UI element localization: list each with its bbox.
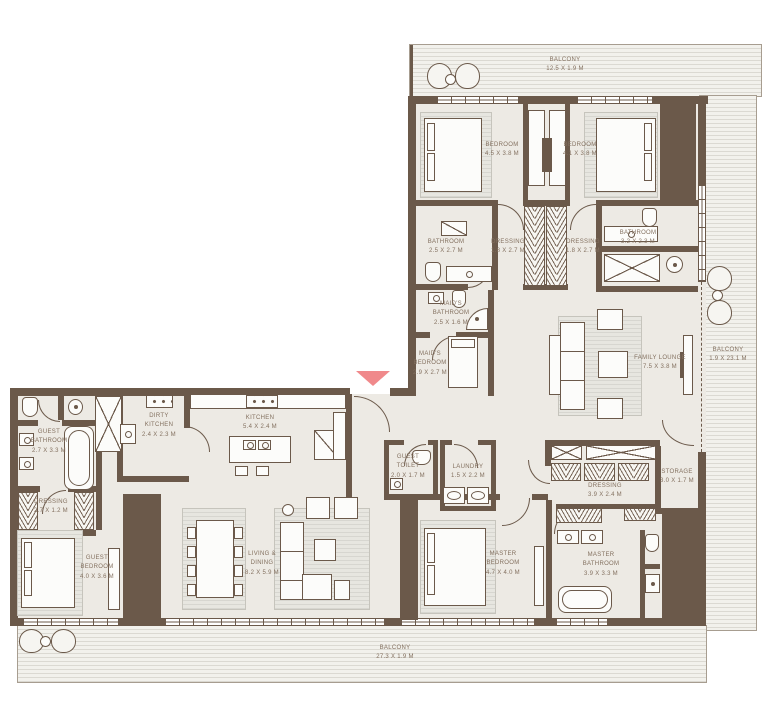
sink: [258, 440, 271, 450]
room-label-balcony-right: BALCONY1.9 x 23.1 M: [702, 346, 754, 365]
chair: [187, 584, 196, 596]
armchair: [597, 309, 623, 330]
room-dims: 2.7 x 3.3 M: [32, 447, 66, 456]
window: [166, 618, 384, 626]
room-dims: 2.5 x 2.7 M: [429, 247, 463, 256]
room-label-kitchen: KITCHEN5.4 x 2.4 M: [230, 414, 290, 433]
chair: [187, 527, 196, 539]
sink: [581, 530, 603, 544]
wardrobe-rack: [624, 508, 656, 521]
room-label-dressing-2: DRESSING1.8 x 2.7 M: [562, 238, 604, 257]
dining-table: [196, 520, 234, 598]
room-dims: 1.5 x 2.2 M: [451, 472, 485, 481]
shower: [68, 399, 83, 415]
window: [24, 618, 118, 626]
room-dims: 2.0 x 1.7 M: [391, 472, 425, 481]
toilet: [22, 397, 38, 417]
ottoman: [334, 580, 350, 600]
room-name: DRESSING: [588, 482, 622, 491]
entrance-marker-icon: [356, 371, 390, 386]
stool: [235, 466, 248, 476]
room-label-dirty-kitchen: DIRTY KITCHEN2.4 x 2.3 M: [136, 412, 182, 440]
chair: [187, 546, 196, 558]
wall: [546, 500, 552, 620]
room-dims: 1.8 x 2.7 M: [491, 247, 525, 256]
room-name: BALCONY: [713, 346, 744, 355]
tv-wall-block: [123, 494, 161, 626]
floor-plan: BALCONY12.5 x 1.9 M BALCONY1.9 x 23.1 M …: [0, 0, 766, 727]
wall: [440, 506, 496, 511]
cabinet: [586, 445, 656, 460]
pillow: [24, 570, 32, 596]
room-dims: 2.5 x 1.6 M: [434, 319, 468, 328]
room-label-balcony-bottom: BALCONY27.3 x 1.9 M: [350, 644, 440, 663]
room-name: DRESSING: [491, 238, 525, 247]
chair: [234, 584, 243, 596]
room-label-laundry: LAUNDRY1.5 x 2.2 M: [446, 463, 490, 482]
stool: [256, 466, 269, 476]
room-label-dressing-1: DRESSING1.8 x 2.7 M: [488, 238, 528, 257]
wardrobe-rack: [584, 463, 615, 481]
room-label-dressing-guest: DRESSING2.7 x 1.2 M: [26, 498, 76, 517]
room-name: MASTER BATHROOM: [573, 551, 629, 570]
shower: [645, 574, 660, 593]
room-name: GUEST BEDROOM: [74, 554, 120, 573]
wall: [596, 286, 698, 292]
sink: [243, 440, 256, 450]
room-name: MASTER BEDROOM: [475, 550, 531, 569]
tall-cabinet: [333, 412, 346, 460]
room-dims: 7.5 x 3.8 M: [643, 363, 677, 372]
room-dims: 4.5 x 3.8 M: [485, 150, 519, 159]
toilet: [425, 262, 441, 282]
room-name: STORAGE: [661, 468, 692, 477]
armchair: [306, 497, 330, 519]
chair: [234, 527, 243, 539]
cabinet: [551, 445, 582, 460]
sliding-door-opening: [698, 282, 706, 452]
room-label-maids-bedroom: MAID'S BEDROOM2.9 x 2.7 M: [408, 350, 452, 378]
balcony-chair: [51, 629, 76, 653]
chair: [187, 565, 196, 577]
toilet: [645, 534, 659, 552]
room-label-dressing-master: DRESSING3.9 x 2.4 M: [577, 482, 633, 501]
room-name: GUEST TOILET: [388, 453, 428, 472]
sliding-door-line: [701, 282, 702, 452]
room-dims: 27.3 x 1.9 M: [376, 653, 414, 662]
pillow: [427, 565, 435, 595]
bathtub: [558, 586, 612, 613]
room-label-living-dining: LIVING & DINING8.2 x 5.9 M: [238, 550, 286, 578]
balcony-chair: [455, 63, 480, 89]
pillow: [24, 542, 32, 568]
room-name: BEDROOM: [485, 141, 518, 150]
room-label-family-lounge: FAMILY LOUNGE7.5 x 3.8 M: [628, 354, 692, 373]
room-name: DRESSING: [34, 498, 68, 507]
side-table: [282, 504, 294, 516]
room-label-storage: STORAGE3.0 x 1.7 M: [657, 468, 697, 487]
room-label-guest-bedroom: GUEST BEDROOM4.0 x 3.6 M: [74, 554, 120, 582]
pillow: [427, 153, 435, 181]
room-label-balcony-top: BALCONY12.5 x 1.9 M: [520, 56, 610, 75]
room-dims: 3.9 x 3.3 M: [584, 570, 618, 579]
window: [698, 186, 706, 280]
washing-machine: [443, 487, 465, 504]
room-name: LIVING & DINING: [238, 550, 286, 569]
wall: [488, 290, 494, 396]
room-label-maids-bathroom: MAID'S BATHROOM2.5 x 1.6 M: [428, 300, 474, 328]
room-dims: 4.0 x 3.6 M: [80, 573, 114, 582]
pillow: [451, 339, 475, 348]
wall: [384, 440, 404, 445]
tv-console: [534, 546, 544, 606]
sofa: [560, 322, 585, 410]
room-label-guest-bathroom: GUEST BATHROOM2.7 x 3.3 M: [24, 428, 74, 456]
sink: [557, 530, 579, 544]
shaft-block: [662, 514, 698, 618]
stove: [146, 395, 173, 408]
wardrobe-post: [542, 138, 552, 172]
room-label-bedroom-1: BEDROOM4.5 x 3.8 M: [472, 141, 532, 160]
room-dims: 2.9 x 2.7 M: [413, 369, 447, 378]
shower-screen: [441, 221, 467, 236]
coffee-table: [598, 351, 628, 378]
closet: [95, 396, 122, 452]
sofa: [302, 574, 332, 600]
room-dims: 2.7 x 1.2 M: [34, 507, 68, 516]
wall: [416, 332, 430, 338]
room-dims: 8.2 x 5.9 M: [245, 569, 279, 578]
pillow: [644, 153, 652, 181]
room-name: LAUNDRY: [453, 463, 484, 472]
sink-counter: [446, 266, 492, 282]
room-name: MAID'S BEDROOM: [408, 350, 452, 369]
sink: [19, 457, 34, 470]
room-dims: 4.7 x 4.0 M: [486, 569, 520, 578]
pillow: [427, 123, 435, 151]
pillow: [644, 123, 652, 151]
room-label-bathroom-2: BATHROOM3.2 x 2.3 M: [610, 229, 666, 248]
wall: [346, 394, 352, 498]
wardrobe-rack: [618, 463, 649, 481]
window: [578, 96, 652, 104]
balcony-table: [445, 74, 456, 85]
room-dims: 3.0 x 1.7 M: [660, 477, 694, 486]
room-name: BALCONY: [550, 56, 581, 65]
room-name: BEDROOM: [563, 141, 596, 150]
window: [438, 96, 518, 104]
room-dims: 4.1 x 3.8 M: [563, 150, 597, 159]
console-table: [549, 335, 561, 395]
room-dims: 1.8 x 2.7 M: [566, 247, 600, 256]
window: [557, 618, 607, 626]
wall: [640, 564, 660, 569]
shower: [666, 256, 683, 273]
room-label-bathroom-1: BATHROOM2.5 x 2.7 M: [418, 238, 474, 257]
stove: [246, 395, 278, 408]
armchair: [334, 497, 358, 519]
cabinet: [604, 254, 660, 282]
room-name: MAID'S BATHROOM: [428, 300, 474, 319]
room-dims: 3.2 x 2.3 M: [621, 238, 655, 247]
balcony-chair: [707, 266, 732, 291]
pillow: [427, 533, 435, 563]
sink: [120, 424, 136, 444]
room-name: BATHROOM: [620, 229, 657, 238]
room-label-guest-toilet: GUEST TOILET2.0 x 1.7 M: [388, 453, 428, 481]
room-label-bedroom-2: BEDROOM4.1 x 3.8 M: [552, 141, 608, 160]
room-name: KITCHEN: [246, 414, 274, 423]
wall: [433, 440, 438, 498]
room-name: FAMILY LOUNGE: [634, 354, 686, 363]
wall: [16, 420, 38, 426]
room-label-master-bathroom: MASTER BATHROOM3.9 x 3.3 M: [573, 551, 629, 579]
coffee-table: [314, 539, 336, 561]
toilet: [642, 208, 657, 227]
wardrobe-rack: [556, 508, 602, 523]
wall: [416, 200, 497, 206]
room-label-master-bedroom: MASTER BEDROOM4.7 x 4.0 M: [475, 550, 531, 578]
room-dims: 12.5 x 1.9 M: [546, 65, 584, 74]
wardrobe-rack: [551, 463, 581, 481]
window: [402, 618, 534, 626]
balcony-table: [712, 290, 723, 301]
room-name: DIRTY KITCHEN: [136, 412, 182, 431]
room-dims: 5.4 x 2.4 M: [243, 423, 277, 432]
washing-machine: [467, 487, 489, 504]
room-name: BATHROOM: [428, 238, 465, 247]
room-dims: 1.9 x 23.1 M: [709, 355, 747, 364]
room-name: DRESSING: [566, 238, 600, 247]
room-name: GUEST BATHROOM: [24, 428, 74, 447]
room-dims: 3.9 x 2.4 M: [588, 491, 622, 500]
balcony-chair: [707, 300, 732, 325]
wall: [390, 388, 416, 396]
armchair: [597, 398, 623, 419]
room-dims: 2.4 x 2.3 M: [142, 431, 176, 440]
wardrobe-block: [400, 500, 418, 620]
balcony-table: [40, 636, 51, 647]
wall: [117, 476, 189, 482]
wardrobe-rack: [74, 492, 94, 530]
wardrobe-block: [660, 100, 696, 202]
room-name: BALCONY: [380, 644, 411, 653]
